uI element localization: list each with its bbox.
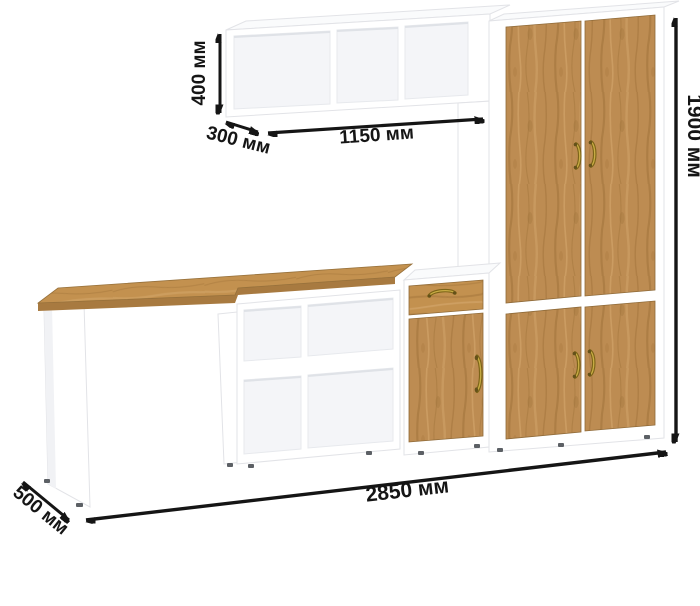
shelf-height-label: 400 мм [189,40,210,105]
total-width-label: 2850 мм [364,474,450,506]
wardrobe-door-lower-left [506,307,581,439]
wall-shelf [226,5,510,117]
wall-shelf-cell-3 [405,22,468,99]
desk-foot [76,503,83,507]
wardrobe-door-lower-right [585,301,655,431]
wardrobe [489,1,679,452]
wardrobe-foot [644,435,650,439]
cube-shelf-cell-tl [244,306,301,361]
wardrobe-foot [497,448,503,452]
furniture-scene: 400 мм 300 мм 1150 мм 1900 мм 2850 мм 50… [0,0,700,606]
cube-shelf-foot [248,464,254,468]
wardrobe-door-upper-left [506,21,581,303]
cube-shelf-foot [366,451,372,455]
desk [44,303,243,507]
cube-shelf-cell-tr [308,298,393,356]
total-height-label: 1900 мм [683,94,700,178]
wardrobe-foot [558,443,564,447]
wall-shelf-cell-2 [337,27,398,103]
cabinet-door [409,313,483,442]
cube-shelf-cell-bl [244,376,301,454]
side-column-panel [458,101,492,277]
cabinet [404,263,500,455]
cube-shelf [237,290,400,468]
cube-shelf-cell-br [308,368,393,448]
wall-shelf-cell-1 [234,31,330,109]
cabinet-foot [474,444,480,448]
desk-foot [227,463,233,467]
cabinet-drawer [409,280,483,315]
shelf-width-label: 1150 мм [339,122,415,148]
cabinet-foot [418,451,424,455]
desk-foot [44,479,50,483]
furniture-dimension-drawing: 400 мм 300 мм 1150 мм 1900 мм 2850 мм 50… [0,0,700,606]
shelf-depth-label: 300 мм [204,123,272,159]
